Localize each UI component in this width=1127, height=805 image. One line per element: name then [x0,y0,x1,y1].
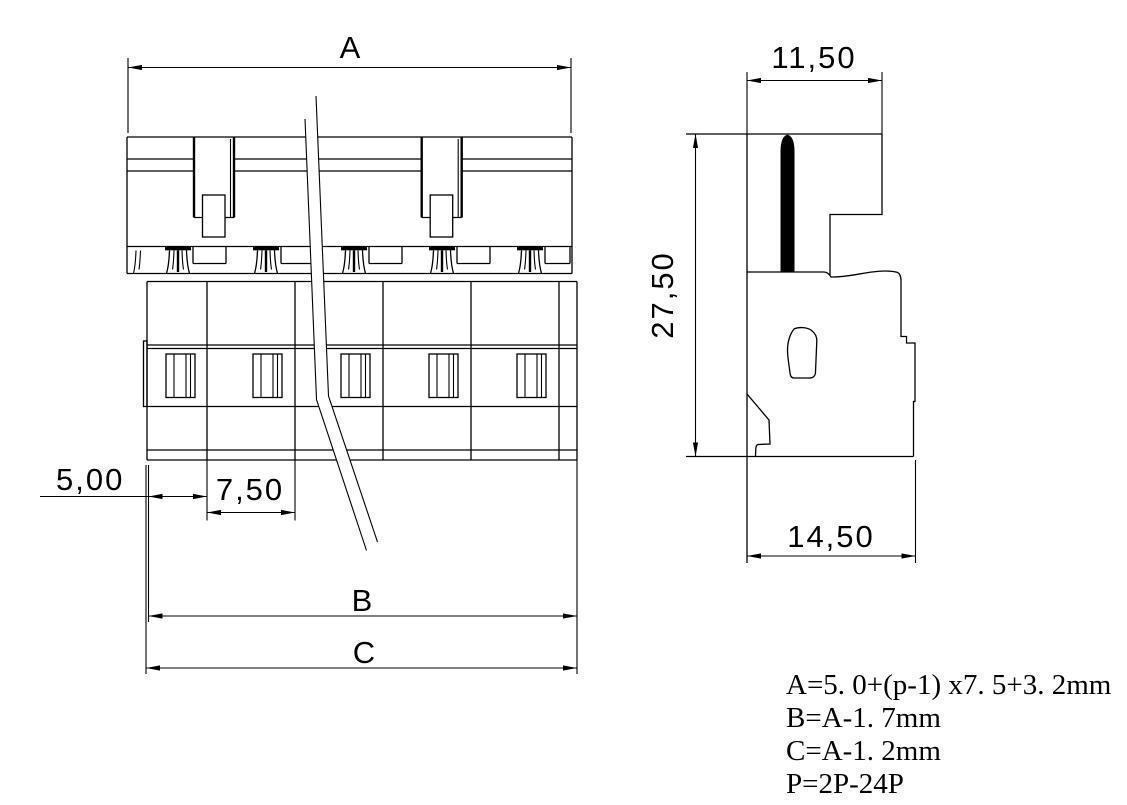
side-right-upper-step [830,134,882,275]
dim-pitch-group: 7,50 [207,472,295,515]
foot-notch [193,247,226,264]
dim-bottom-depth-label: 14,50 [787,519,875,554]
arrowhead [128,65,142,70]
latch-tab-2 [422,137,462,237]
contact-foot [165,247,191,274]
front-terminal-block [144,282,578,461]
latch-tab-1 [194,137,234,237]
dim-b-group: B [149,583,578,619]
arrowhead [693,443,698,457]
dim-c-label: C [353,635,375,670]
contact-window [341,354,370,398]
foot-notch [457,247,490,264]
formula-b: B=A-1. 7mm [786,702,941,734]
arrowhead [557,65,571,70]
contact-pin [781,135,795,273]
dim-height-group: 27,50 [645,134,698,457]
contact-window [253,354,282,398]
side-latch-detail [788,328,817,378]
break-mask [305,96,378,551]
arrowhead [207,510,221,515]
front-contact-feet-row [134,247,571,274]
dim-pitch-label: 7,50 [216,472,284,507]
arrowhead [149,613,163,618]
technical-drawing: A B C 5,00 7,50 [0,0,1127,805]
arrowhead [868,78,882,83]
terminal-block-dividers [207,282,559,461]
arrowhead [563,613,577,618]
front-view: A B C 5,00 7,50 [40,30,577,674]
formula-p: P=2P-24P [786,768,904,800]
partial-foot-left [134,251,141,274]
arrowhead [146,665,160,670]
dim-bottom-depth-group: 14,50 [747,519,916,559]
formula-c: C=A-1. 2mm [786,735,941,767]
arrowhead [193,494,207,499]
terminal-block-left-tab [144,341,148,407]
dim-a-label: A [340,30,361,65]
side-profile [686,134,915,563]
arrowhead [281,510,295,515]
side-mid-profile [747,271,915,456]
dim-b-label: B [352,583,373,618]
contact-window [429,354,458,398]
side-view: 11,50 27,50 14,50 [645,40,916,563]
foot-notch-last [545,247,570,264]
arrowhead [747,78,761,83]
dim-a-group: A [128,30,571,70]
contact-foot [253,247,279,274]
side-extension-lines [747,72,916,563]
arrowhead [747,553,761,558]
contact-foot [517,247,543,274]
terminal-block-outline [147,282,577,461]
contact-foot [341,247,367,274]
break-lines [305,96,378,551]
dim-end-pocket-group: 5,00 [40,462,207,499]
contact-foot [429,247,455,274]
formula-a: A=5. 0+(p-1) x7. 5+3. 2mm [786,669,1112,701]
dim-c-group: C [146,635,577,671]
dim-height-label: 27,50 [645,251,680,339]
arrowhead [149,494,163,499]
dim-top-width-group: 11,50 [747,40,882,83]
contact-windows [166,354,546,398]
formula-block: A=5. 0+(p-1) x7. 5+3. 2mm B=A-1. 7mm C=A… [786,669,1112,800]
arrowhead [563,665,577,670]
side-mounting-foot [747,394,770,457]
foot-notch [281,247,314,264]
contact-window [166,354,195,398]
arrowhead [693,134,698,148]
foot-notch [369,247,402,264]
contact-window [517,354,546,398]
dim-end-pocket-label: 5,00 [56,462,124,497]
arrowhead [902,553,916,558]
dim-top-width-label: 11,50 [771,40,856,75]
